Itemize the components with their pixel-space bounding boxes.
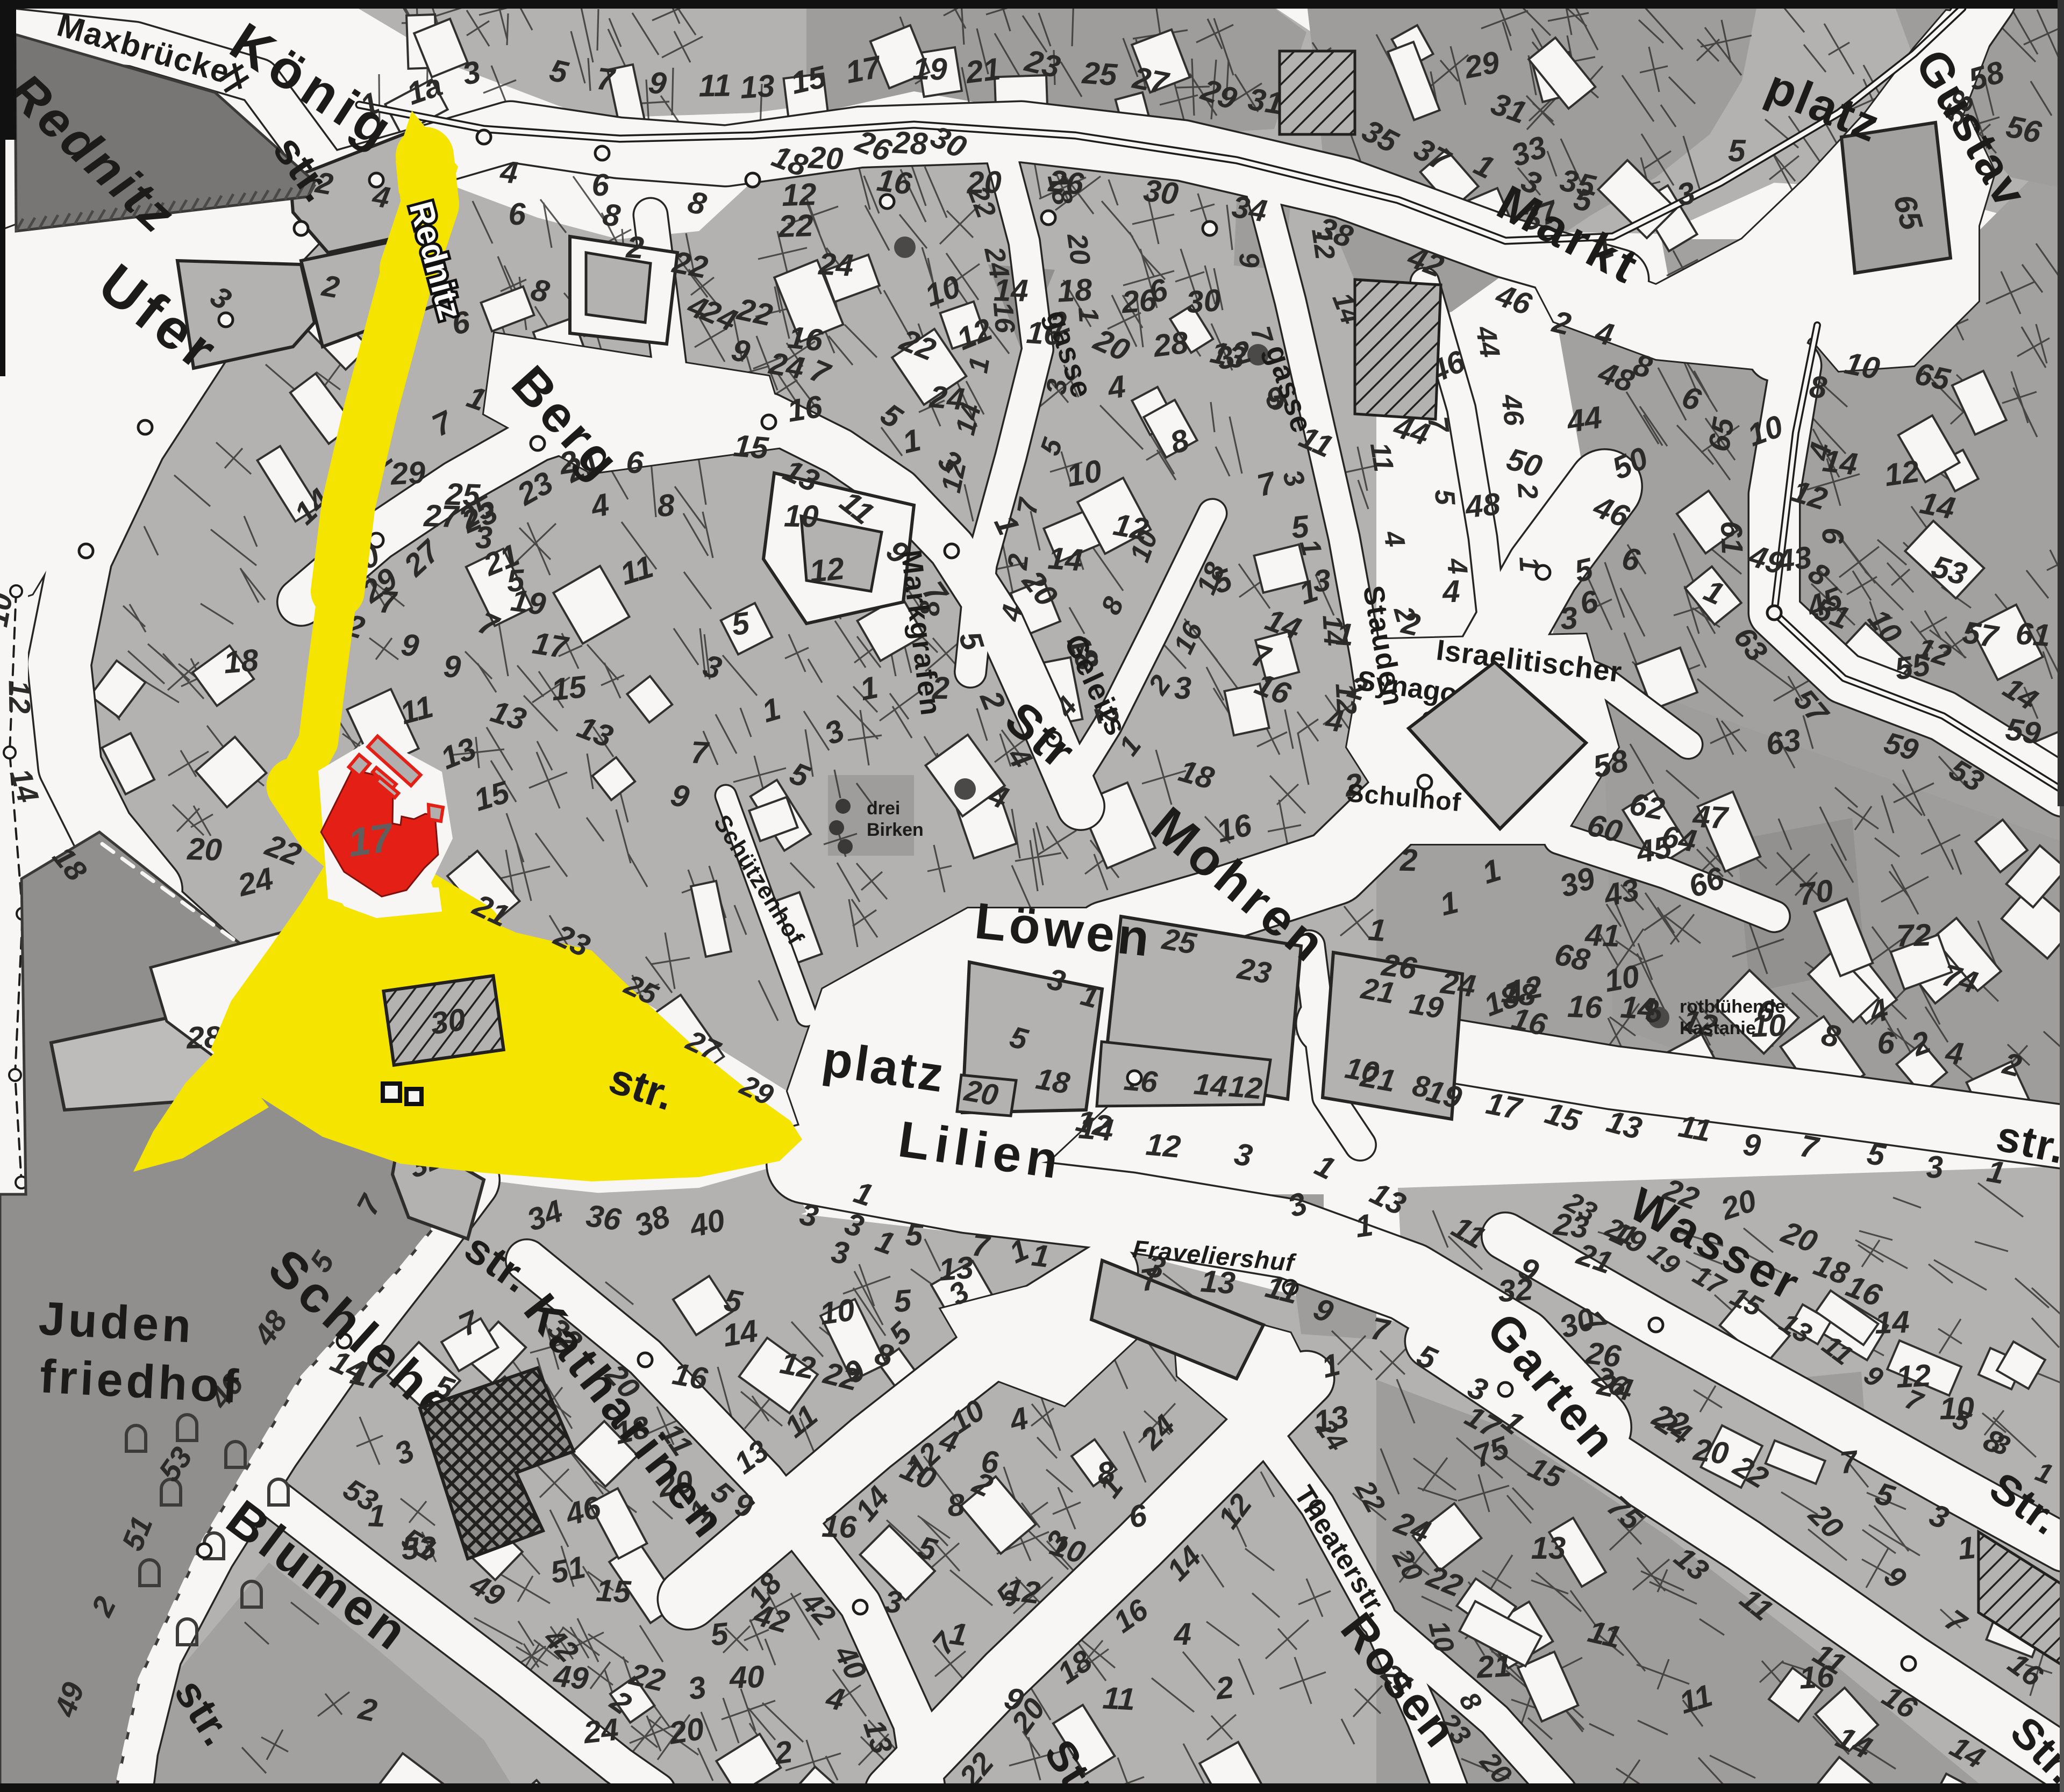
svg-text:16: 16 (1798, 1659, 1836, 1695)
svg-text:friedhof: friedhof (39, 1349, 243, 1413)
svg-text:28: 28 (1151, 325, 1191, 364)
svg-text:1: 1 (1367, 912, 1388, 949)
svg-text:57: 57 (1960, 615, 2002, 655)
svg-text:Juden: Juden (38, 1292, 196, 1353)
svg-text:12: 12 (2, 680, 37, 714)
svg-text:16: 16 (875, 162, 914, 201)
svg-text:15: 15 (595, 1573, 632, 1609)
svg-text:19: 19 (509, 583, 548, 622)
svg-text:4: 4 (1173, 1617, 1191, 1652)
svg-text:3: 3 (883, 1584, 904, 1621)
svg-text:70: 70 (1796, 873, 1836, 912)
svg-text:2: 2 (1511, 482, 1544, 500)
svg-text:3: 3 (1174, 671, 1191, 706)
svg-text:65: 65 (1701, 415, 1740, 454)
svg-text:3: 3 (1925, 1149, 1944, 1185)
svg-text:14: 14 (1820, 443, 1859, 482)
svg-text:61: 61 (1715, 520, 1749, 555)
svg-text:32: 32 (1497, 1272, 1534, 1309)
svg-text:4: 4 (498, 154, 520, 190)
svg-text:12: 12 (1227, 1069, 1264, 1105)
svg-text:5: 5 (1728, 133, 1746, 169)
svg-text:16: 16 (670, 1356, 711, 1396)
svg-text:2: 2 (625, 230, 645, 266)
svg-text:20: 20 (807, 140, 844, 176)
svg-text:59: 59 (2003, 712, 2043, 751)
svg-text:16: 16 (821, 1509, 857, 1545)
svg-text:7: 7 (690, 735, 710, 771)
svg-text:24: 24 (928, 379, 966, 417)
svg-text:1: 1 (1513, 556, 1545, 573)
svg-text:2: 2 (1002, 553, 1035, 572)
svg-text:14: 14 (720, 1313, 760, 1353)
svg-text:15: 15 (732, 428, 770, 465)
svg-text:43: 43 (1601, 872, 1642, 913)
svg-text:18: 18 (222, 642, 260, 680)
svg-text:46: 46 (1495, 392, 1530, 428)
svg-text:11: 11 (1364, 440, 1399, 474)
svg-text:13: 13 (1531, 1531, 1566, 1566)
svg-text:49: 49 (552, 1658, 590, 1696)
svg-text:44: 44 (1564, 400, 1604, 440)
svg-text:63: 63 (1763, 722, 1803, 762)
svg-text:44: 44 (1469, 324, 1505, 360)
svg-text:6: 6 (1877, 1026, 1895, 1061)
svg-text:Birken: Birken (867, 820, 924, 840)
svg-text:Kastanie: Kastanie (1680, 1018, 1756, 1038)
svg-text:29: 29 (389, 455, 426, 491)
svg-text:4: 4 (1441, 557, 1473, 576)
svg-text:14: 14 (1917, 485, 1958, 526)
svg-text:43: 43 (1774, 540, 1814, 579)
svg-text:48: 48 (1463, 486, 1502, 525)
svg-text:61: 61 (2015, 616, 2052, 653)
svg-text:64: 64 (1659, 819, 1699, 859)
svg-text:30: 30 (1185, 283, 1222, 320)
svg-text:17: 17 (530, 626, 572, 666)
svg-text:26: 26 (1120, 283, 1158, 320)
svg-text:10: 10 (784, 498, 819, 534)
svg-text:30: 30 (1141, 173, 1180, 211)
svg-text:13: 13 (937, 1250, 975, 1287)
svg-text:14: 14 (1874, 1304, 1910, 1341)
svg-text:2: 2 (1214, 1670, 1235, 1707)
svg-text:24: 24 (817, 246, 854, 283)
svg-text:18: 18 (1056, 272, 1094, 309)
svg-text:5: 5 (904, 1217, 924, 1253)
svg-text:2: 2 (1399, 843, 1418, 878)
svg-text:24: 24 (581, 1712, 620, 1750)
svg-text:12: 12 (808, 551, 846, 589)
svg-text:29: 29 (1461, 45, 1502, 85)
svg-text:40: 40 (729, 1659, 765, 1695)
svg-text:55: 55 (1892, 647, 1933, 686)
svg-text:1: 1 (1956, 1530, 1977, 1567)
svg-text:36: 36 (584, 1198, 624, 1237)
svg-text:7: 7 (378, 584, 398, 620)
svg-text:20: 20 (961, 1073, 1001, 1112)
svg-text:10: 10 (818, 1292, 857, 1331)
svg-text:3: 3 (1312, 563, 1332, 599)
svg-text:21: 21 (1475, 1648, 1512, 1685)
svg-text:12: 12 (777, 1345, 818, 1386)
svg-text:16: 16 (1567, 989, 1603, 1025)
svg-text:62: 62 (1627, 786, 1667, 827)
svg-text:12: 12 (1003, 1572, 1042, 1610)
svg-text:20: 20 (186, 832, 223, 868)
svg-text:3: 3 (1559, 600, 1580, 637)
svg-text:21: 21 (1358, 1058, 1398, 1099)
svg-text:9: 9 (442, 649, 462, 685)
svg-text:16: 16 (785, 389, 825, 428)
svg-text:24: 24 (1438, 965, 1477, 1003)
svg-text:25: 25 (1159, 921, 1199, 960)
svg-text:14: 14 (994, 273, 1029, 308)
svg-text:21: 21 (963, 51, 1003, 90)
svg-text:53: 53 (401, 1530, 437, 1566)
svg-text:5: 5 (1429, 488, 1461, 506)
svg-text:15: 15 (549, 669, 588, 707)
svg-text:8: 8 (946, 1487, 967, 1524)
svg-text:12: 12 (1895, 1358, 1932, 1394)
svg-text:5: 5 (892, 1283, 912, 1319)
svg-text:23: 23 (1234, 951, 1274, 990)
svg-text:rotblühende: rotblühende (1680, 997, 1785, 1017)
svg-text:12: 12 (1145, 1127, 1182, 1164)
svg-text:6: 6 (508, 197, 526, 232)
svg-text:22: 22 (734, 291, 776, 333)
svg-text:72: 72 (1896, 917, 1932, 954)
svg-text:1: 1 (367, 1498, 386, 1533)
svg-text:12: 12 (1111, 507, 1151, 547)
svg-text:10: 10 (1064, 453, 1104, 493)
svg-text:10: 10 (1939, 1390, 1975, 1426)
svg-text:34: 34 (1230, 189, 1269, 229)
svg-text:24: 24 (766, 346, 807, 386)
svg-text:22: 22 (669, 245, 711, 285)
svg-text:14: 14 (1047, 541, 1084, 578)
svg-text:28: 28 (891, 125, 929, 161)
svg-text:13: 13 (739, 68, 776, 105)
svg-text:19: 19 (912, 51, 948, 87)
svg-text:12: 12 (1882, 454, 1922, 493)
svg-text:18: 18 (1033, 1061, 1073, 1100)
svg-text:13: 13 (1311, 1399, 1352, 1440)
svg-text:20: 20 (1691, 1432, 1731, 1471)
svg-text:12: 12 (935, 458, 973, 496)
svg-text:14: 14 (1192, 1066, 1229, 1103)
svg-text:11: 11 (698, 68, 731, 103)
svg-text:26: 26 (1379, 947, 1419, 986)
svg-text:30: 30 (428, 1002, 468, 1041)
svg-text:6: 6 (1816, 526, 1851, 546)
svg-text:20: 20 (666, 1711, 706, 1751)
svg-text:51: 51 (547, 1550, 588, 1590)
svg-text:22: 22 (777, 208, 814, 244)
svg-text:10: 10 (1842, 346, 1883, 386)
svg-text:drei: drei (867, 798, 900, 819)
svg-text:10: 10 (1602, 958, 1642, 999)
svg-text:12: 12 (1305, 226, 1340, 261)
svg-text:17: 17 (345, 814, 397, 865)
svg-text:11: 11 (1676, 1109, 1714, 1149)
svg-text:8: 8 (656, 488, 676, 524)
svg-text:1: 1 (1335, 617, 1355, 653)
svg-text:4: 4 (1441, 574, 1461, 609)
svg-text:11: 11 (1102, 1680, 1136, 1717)
svg-text:25: 25 (1081, 55, 1119, 92)
svg-text:20: 20 (1061, 231, 1096, 267)
svg-text:8: 8 (1808, 369, 1829, 406)
